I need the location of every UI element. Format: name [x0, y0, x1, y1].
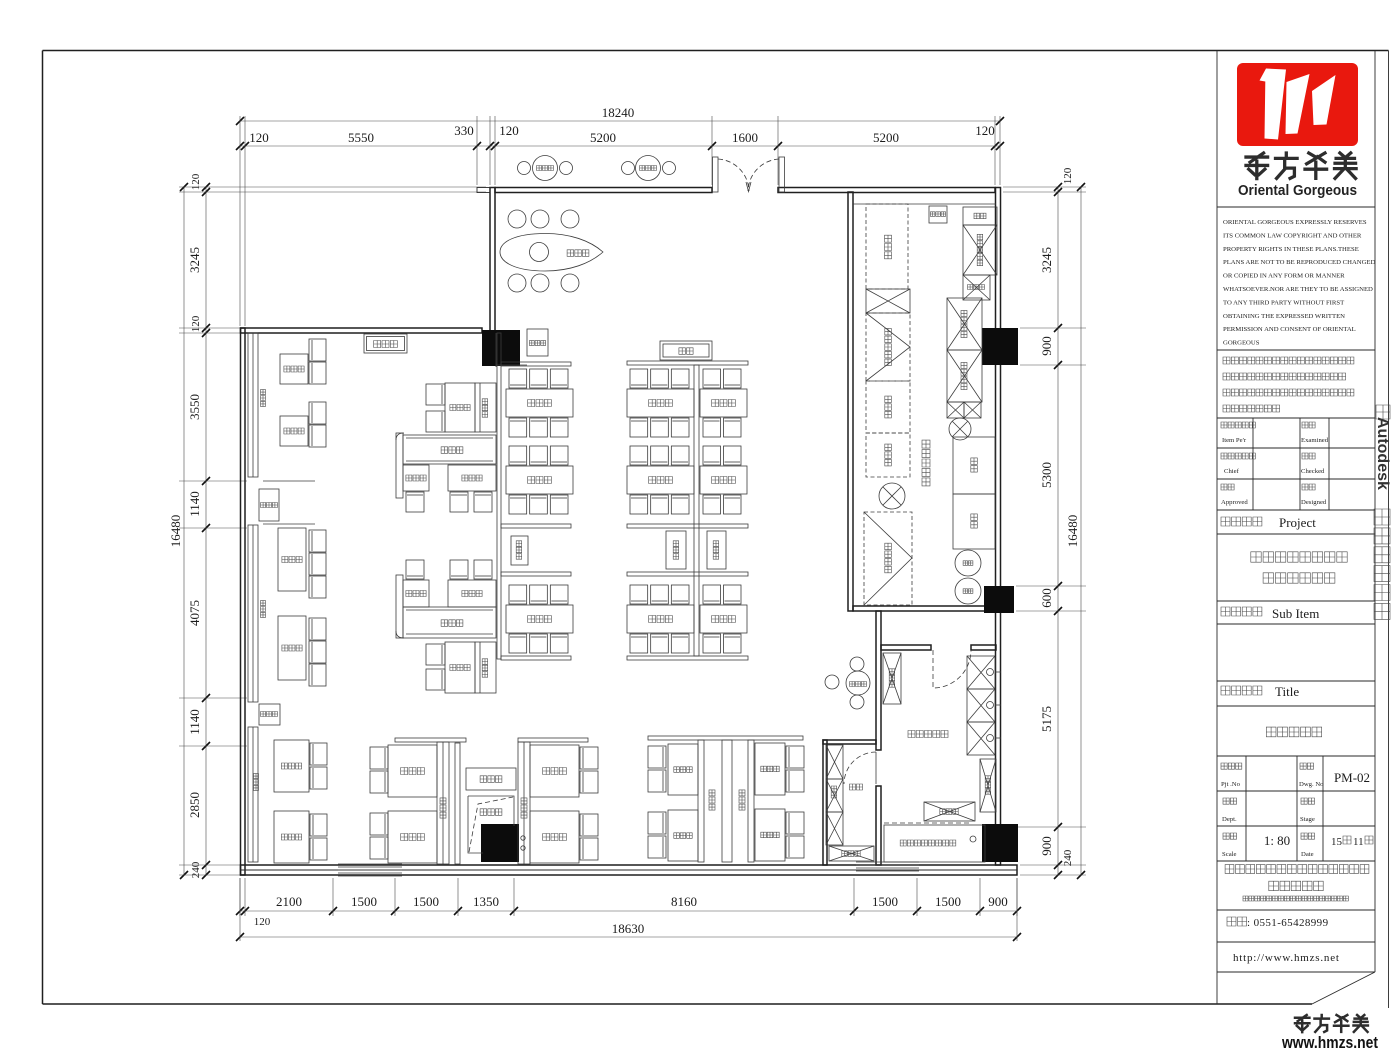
svg-text:120: 120: [190, 315, 202, 332]
svg-text:PROPERTY RIGHTS IN THESE PLANS: PROPERTY RIGHTS IN THESE PLANS.THESE: [1223, 246, 1359, 253]
svg-text:900: 900: [1039, 836, 1054, 856]
svg-text:120: 120: [975, 123, 995, 138]
svg-text:Dept.: Dept.: [1222, 816, 1237, 823]
svg-text:1140: 1140: [187, 491, 202, 517]
svg-text:240: 240: [190, 861, 202, 878]
svg-text:18240: 18240: [602, 105, 635, 120]
svg-text:2850: 2850: [187, 792, 202, 818]
svg-text:5200: 5200: [873, 130, 899, 145]
svg-text:Designed: Designed: [1301, 499, 1327, 506]
svg-text:3245: 3245: [187, 247, 202, 273]
svg-text:900: 900: [1039, 336, 1054, 356]
svg-text:: 0551-65428999: : 0551-65428999: [1247, 917, 1329, 929]
svg-text:5300: 5300: [1039, 462, 1054, 488]
svg-text:330: 330: [454, 123, 474, 138]
svg-text:Autodesk: Autodesk: [1374, 417, 1391, 490]
svg-text:ITS COMMON LAW COPYRIGHT AND O: ITS COMMON LAW COPYRIGHT AND OTHER: [1223, 232, 1362, 239]
svg-text:OR COPIED IN ANY FORM OR MANNE: OR COPIED IN ANY FORM OR MANNER: [1223, 273, 1345, 280]
svg-text:1500: 1500: [872, 894, 898, 909]
svg-text:900: 900: [988, 894, 1008, 909]
svg-text:Date: Date: [1301, 851, 1314, 858]
svg-text:Pjt .No: Pjt .No: [1221, 781, 1241, 788]
svg-text:1: 80: 1: 80: [1264, 833, 1290, 848]
svg-text:5175: 5175: [1039, 706, 1054, 732]
svg-text:16480: 16480: [1065, 515, 1080, 548]
svg-text:15: 15: [1331, 836, 1343, 848]
svg-text:1350: 1350: [473, 894, 499, 909]
svg-text:18630: 18630: [612, 921, 645, 936]
svg-text:120: 120: [499, 123, 519, 138]
svg-text:WHATSOEVER.NOR ARE THEY TO BE: WHATSOEVER.NOR ARE THEY TO BE ASSIGNED: [1223, 286, 1373, 293]
svg-text:GORGEOUS: GORGEOUS: [1223, 340, 1260, 347]
svg-text:3550: 3550: [187, 394, 202, 420]
svg-text:8160: 8160: [671, 894, 697, 909]
svg-text:120: 120: [190, 173, 202, 190]
svg-text:5550: 5550: [348, 130, 374, 145]
svg-text:1140: 1140: [187, 709, 202, 735]
svg-text:http://www.hmzs.net: http://www.hmzs.net: [1233, 952, 1340, 964]
svg-text:PLANS ARE NOT TO BE REPRODUCED: PLANS ARE NOT TO BE REPRODUCED CHANGED: [1223, 259, 1376, 266]
svg-text:TO ANY THIRD PARTY WITHOUT FIR: TO ANY THIRD PARTY WITHOUT FIRST: [1223, 299, 1344, 306]
svg-text:Approved: Approved: [1221, 499, 1248, 506]
svg-text:5200: 5200: [590, 130, 616, 145]
svg-text:16480: 16480: [168, 515, 183, 548]
svg-text:3245: 3245: [1039, 247, 1054, 273]
svg-text:Item Pe'r: Item Pe'r: [1222, 437, 1247, 444]
svg-text:Chief: Chief: [1224, 468, 1240, 475]
svg-text:240: 240: [1062, 849, 1074, 866]
svg-text:120: 120: [249, 130, 269, 145]
svg-text:PERMISSION AND CONSENT OF ORIE: PERMISSION AND CONSENT OF ORIENTAL: [1223, 326, 1356, 333]
svg-text:2100: 2100: [276, 894, 302, 909]
svg-text:PM-02: PM-02: [1334, 770, 1370, 785]
svg-text:Sub Item: Sub Item: [1272, 606, 1319, 621]
svg-text:600: 600: [1039, 588, 1054, 608]
svg-text:4075: 4075: [187, 600, 202, 626]
svg-text:www.hmzs.net: www.hmzs.net: [1281, 1034, 1378, 1052]
svg-text:Scale: Scale: [1222, 851, 1237, 858]
svg-text:Dwg. No: Dwg. No: [1299, 781, 1324, 788]
svg-text:Oriental Gorgeous: Oriental Gorgeous: [1238, 183, 1357, 199]
svg-text:Title: Title: [1275, 684, 1299, 699]
svg-text:11: 11: [1353, 836, 1364, 848]
svg-text:1600: 1600: [732, 130, 758, 145]
svg-text:1500: 1500: [351, 894, 377, 909]
svg-text:1500: 1500: [413, 894, 439, 909]
svg-text:120: 120: [1062, 167, 1074, 184]
svg-text:Examined: Examined: [1301, 437, 1329, 444]
svg-text:1500: 1500: [935, 894, 961, 909]
svg-text:OBTAINING THE EXPRESSED WRITTE: OBTAINING THE EXPRESSED WRITTEN: [1223, 313, 1345, 320]
svg-text:120: 120: [254, 916, 271, 928]
svg-text:ORIENTAL GORGEOUS EXPRESSLY RE: ORIENTAL GORGEOUS EXPRESSLY RESERVES: [1223, 219, 1367, 226]
svg-text:Checked: Checked: [1301, 468, 1325, 475]
svg-text:Project: Project: [1279, 515, 1316, 530]
svg-text:Stage: Stage: [1300, 816, 1315, 823]
